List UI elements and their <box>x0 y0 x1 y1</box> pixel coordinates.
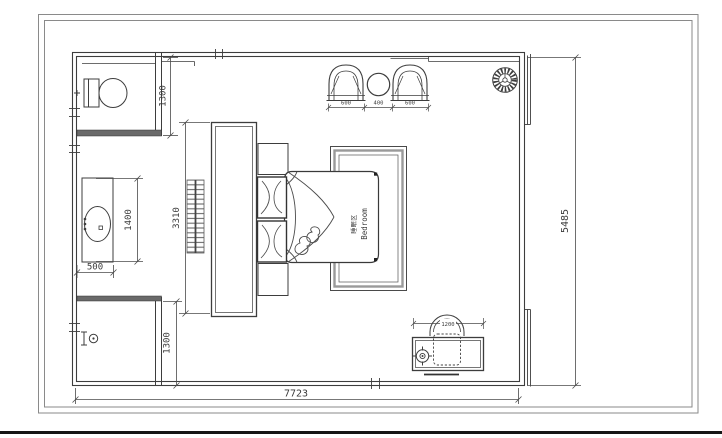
svg-text:1400: 1400 <box>124 209 134 231</box>
toilet-partition-wall <box>82 53 162 137</box>
cad-canvas[interactable]: 睡眠区 Bedroom <box>0 0 722 438</box>
dimension-desk-width: 1200 <box>411 318 486 329</box>
vanity-sink <box>82 178 113 262</box>
svg-text:7723: 7723 <box>284 389 308 400</box>
svg-text:1200: 1200 <box>441 322 454 328</box>
shower-sill <box>77 296 162 301</box>
window-right-bottom <box>525 310 531 387</box>
window-bottom-edge <box>0 431 722 434</box>
window-right-top <box>525 54 531 125</box>
toilet-icon <box>74 79 127 108</box>
bed-label-zh: 睡眠区 <box>350 214 358 234</box>
radiator-hatch <box>187 180 204 253</box>
dimension-plan-width: 7723 <box>73 388 522 404</box>
svg-text:5485: 5485 <box>560 209 571 233</box>
wardrobe <box>212 123 257 317</box>
toilet-sill <box>77 130 162 136</box>
shower-partition-wall <box>156 297 162 386</box>
dimension-shower-depth: 1300 <box>163 299 183 389</box>
svg-text:400: 400 <box>374 101 384 107</box>
bed-label-en: Bedroom <box>360 208 369 240</box>
dimension-plan-height: 5485 <box>527 55 581 389</box>
side-table <box>367 73 389 95</box>
armchair-right <box>391 65 430 101</box>
svg-text:600: 600 <box>341 101 351 107</box>
floor-plan-drawing: 睡眠区 Bedroom <box>0 0 722 438</box>
dimension-armchair-row: 600 400 600 <box>326 101 431 112</box>
svg-text:1300: 1300 <box>163 332 173 354</box>
ceiling-fan-icon <box>493 68 518 93</box>
shower-icon <box>81 332 98 345</box>
nightstand-bottom <box>258 264 288 296</box>
svg-text:500: 500 <box>87 263 103 273</box>
pillows <box>258 177 287 262</box>
bed: 睡眠区 Bedroom <box>258 172 379 263</box>
svg-text:1300: 1300 <box>159 85 169 107</box>
nightstand-top <box>258 144 288 175</box>
dimension-vanity-width: 500 <box>74 263 117 279</box>
dimension-vanity-length: 1400 <box>96 176 143 265</box>
svg-text:3310: 3310 <box>172 207 182 229</box>
faucet-icon <box>84 218 87 231</box>
armchair-left <box>327 65 366 101</box>
svg-text:600: 600 <box>405 101 415 107</box>
